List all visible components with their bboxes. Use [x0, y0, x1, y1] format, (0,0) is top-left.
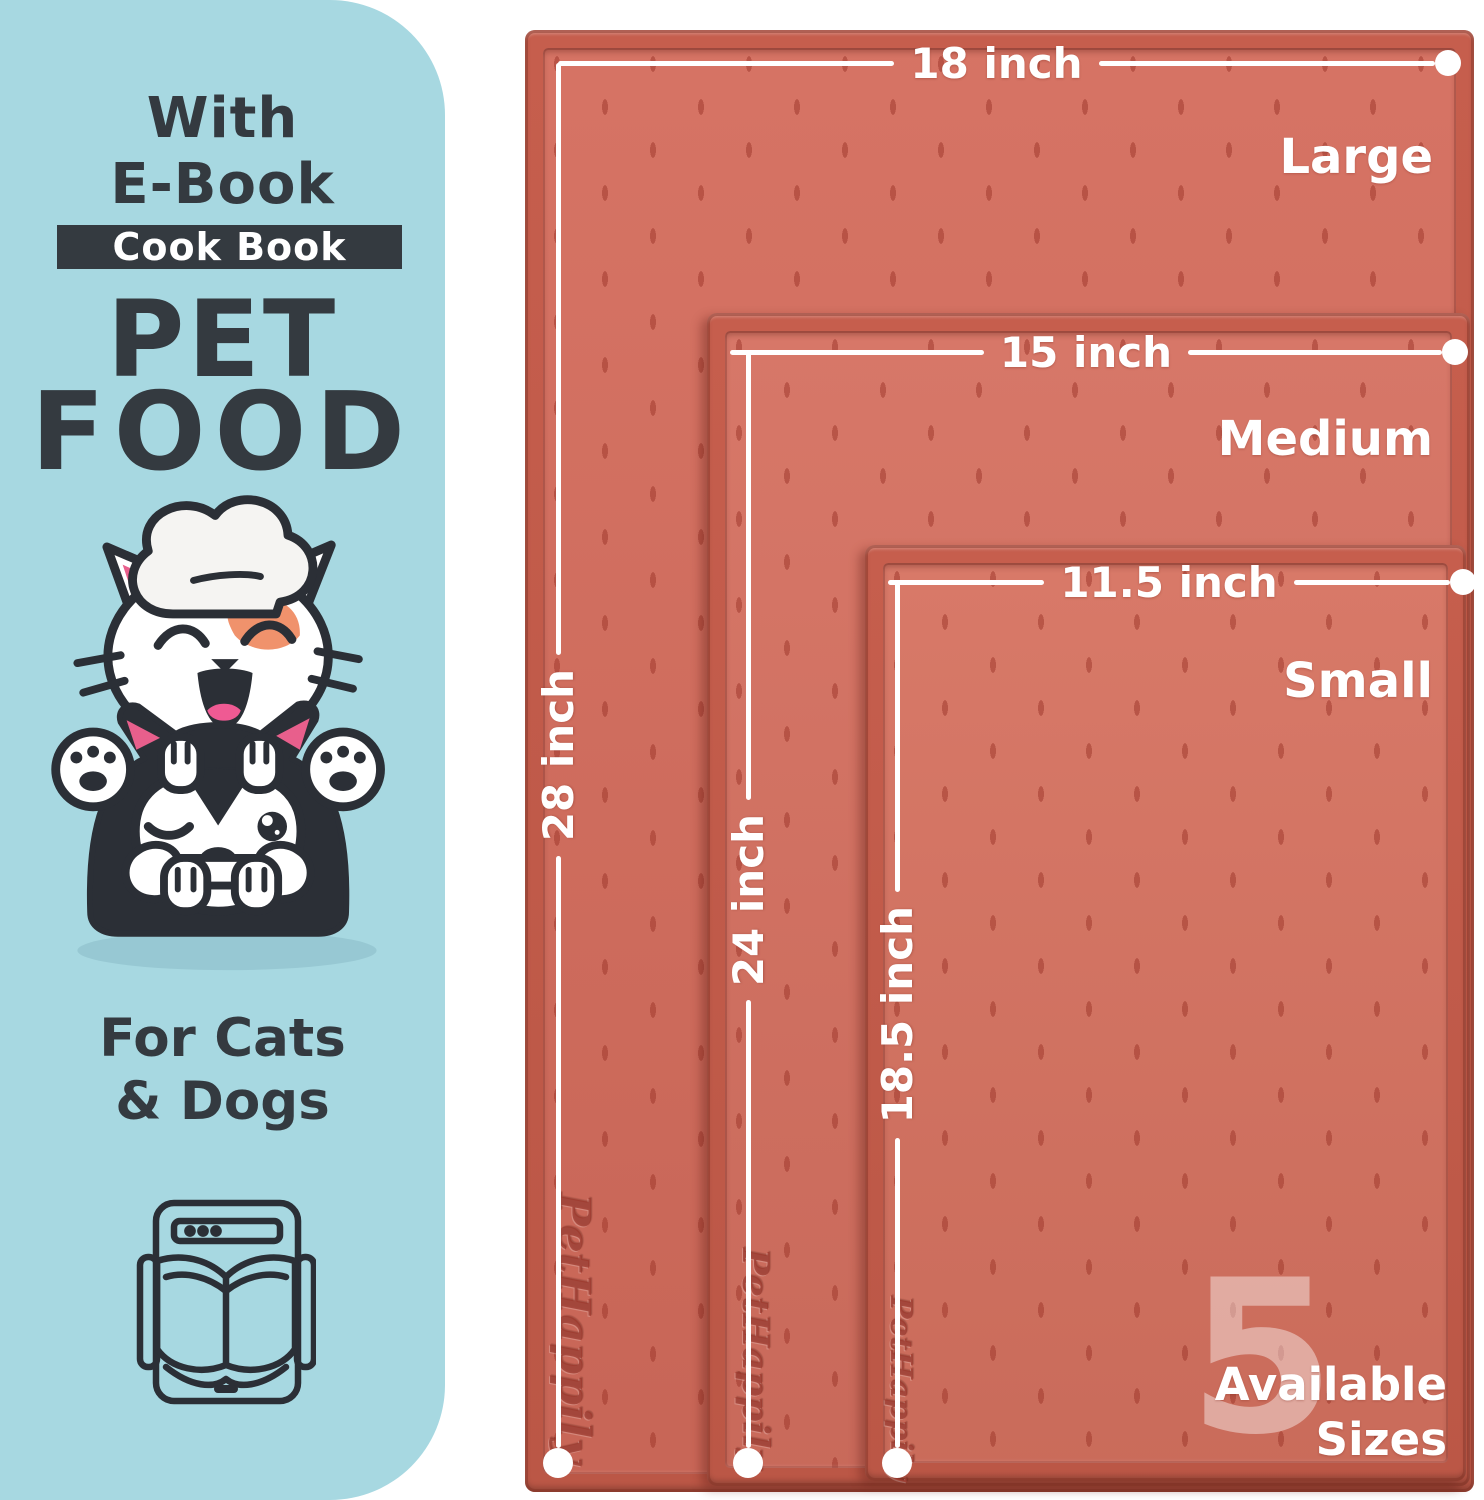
dimension-label-width-large: 18 inch — [910, 39, 1082, 88]
cat-chef-dog-illustration — [38, 482, 412, 982]
sidebar-panel: With E-Book Cook Book PET FOOD — [0, 0, 445, 1500]
sizes-label: Sizes — [1215, 1413, 1447, 1468]
and-dogs-label: & Dogs — [0, 1071, 445, 1134]
dimension-line-segment — [746, 1000, 751, 1448]
dimension-label-height-large: 28 inch — [534, 669, 583, 841]
dimension-line-segment — [556, 63, 561, 655]
dimension-line-height-medium: 24 inch — [723, 352, 773, 1478]
available-sizes-label: Available Sizes — [1215, 1358, 1447, 1468]
dimension-line-segment — [746, 352, 751, 800]
dimension-line-width-large: 18 inch — [558, 38, 1461, 88]
dimension-endpoint-dot — [1435, 50, 1461, 76]
sidebar-subtitle: For Cats & Dogs — [0, 1008, 445, 1133]
with-label: With — [0, 86, 445, 152]
dimension-line-segment — [556, 856, 561, 1448]
size-name-small: Small — [1283, 653, 1433, 709]
size-name-large: Large — [1279, 129, 1433, 185]
dimension-line-width-medium: 15 inch — [730, 327, 1468, 377]
for-cats-label: For Cats — [0, 1008, 445, 1071]
dimension-line-height-large: 28 inch — [533, 63, 583, 1478]
dimension-line-segment — [1294, 580, 1450, 585]
ebook-icon — [136, 1198, 316, 1410]
title-food: FOOD — [0, 379, 445, 487]
dimension-label-height-medium: 24 inch — [724, 814, 773, 986]
dimension-line-height-small: 18.5 inch — [872, 582, 922, 1478]
dimension-line-segment — [895, 1138, 900, 1448]
dimension-line-segment — [558, 61, 894, 66]
dimension-label-width-small: 11.5 inch — [1060, 558, 1277, 607]
dimension-label-width-medium: 15 inch — [1000, 328, 1172, 377]
sidebar-heading: With E-Book — [0, 86, 445, 217]
dimension-endpoint-dot — [543, 1448, 573, 1478]
dimension-line-width-small: 11.5 inch — [888, 557, 1476, 607]
ebook-label: E-Book — [0, 152, 445, 218]
dimension-endpoint-dot — [733, 1448, 763, 1478]
product-infographic: With E-Book Cook Book PET FOOD — [0, 0, 1484, 1500]
cook-book-badge: Cook Book — [57, 225, 402, 269]
dimension-line-segment — [895, 582, 900, 892]
dimension-label-height-small: 18.5 inch — [873, 906, 922, 1123]
size-name-medium: Medium — [1218, 411, 1433, 467]
dimension-endpoint-dot — [1442, 339, 1468, 365]
dimension-line-segment — [1188, 350, 1442, 355]
dimension-endpoint-dot — [1450, 569, 1476, 595]
dimension-line-segment — [1099, 61, 1435, 66]
available-label: Available — [1215, 1358, 1447, 1413]
dimension-endpoint-dot — [882, 1448, 912, 1478]
